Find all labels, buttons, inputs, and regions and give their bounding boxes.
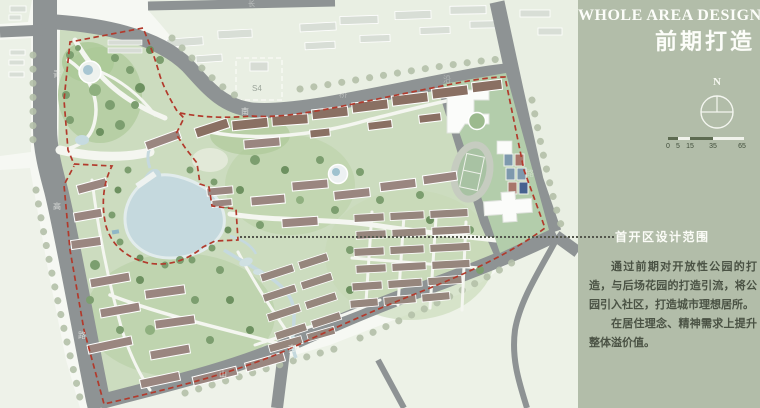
description-text: 通过前期对开放性公园的打造，与后场花园的打造引流，将公园引入社区，打造城市理想居… bbox=[589, 258, 757, 353]
site-plan-map: S4 bbox=[0, 0, 578, 408]
scale-tick-5: 5 bbox=[676, 143, 680, 150]
scale-bar: 0 5 15 35 65 bbox=[666, 136, 746, 154]
road-label-south-1: 杏 bbox=[288, 343, 296, 353]
road-label-north-1: 南 bbox=[241, 106, 249, 116]
road-label-east: 路 bbox=[526, 168, 534, 178]
scale-tick-15: 15 bbox=[686, 143, 694, 150]
first-phase-callout-label: 首开区设计范围 bbox=[615, 228, 710, 245]
north-label: N bbox=[695, 76, 739, 88]
presentation-board: S4 bbox=[0, 0, 760, 408]
road-label-west-2: 高 bbox=[53, 201, 61, 211]
callout-leader-line bbox=[240, 236, 614, 238]
scale-tick-65: 65 bbox=[738, 143, 746, 150]
scale-bar-segments bbox=[668, 137, 744, 140]
road-label-west-3: 路 bbox=[78, 330, 86, 340]
description-paragraph-2: 在居住理念、精神需求上提升整体溢价值。 bbox=[589, 315, 757, 353]
info-panel: WHOLE AREA DESIGN 前期打造 N 0 5 15 35 65 首开… bbox=[578, 0, 760, 408]
road-label-west-1: 青 bbox=[53, 69, 61, 79]
park-pond bbox=[75, 135, 89, 145]
north-arrow: N bbox=[695, 76, 739, 132]
road-northwest bbox=[0, 30, 46, 32]
page-title-chinese: 前期打造 bbox=[578, 24, 755, 56]
road-label-north-edge: 长 bbox=[248, 0, 255, 8]
page-title-english: WHOLE AREA DESIGN bbox=[578, 7, 754, 25]
school-green-circle bbox=[469, 113, 486, 130]
road-label-north-3: 沿 bbox=[443, 75, 451, 84]
road-label-north-2: 桥 bbox=[339, 89, 347, 99]
description-paragraph-1: 通过前期对开放性公园的打造，与后场花园的打造引流，将公园引入社区，打造城市理想居… bbox=[589, 258, 757, 315]
s4-parcel-label: S4 bbox=[252, 84, 262, 93]
scale-tick-35: 35 bbox=[709, 143, 717, 150]
road-label-south-2: 山 bbox=[219, 369, 227, 379]
scale-tick-0: 0 bbox=[666, 143, 670, 150]
road-top-edge bbox=[148, 2, 335, 6]
